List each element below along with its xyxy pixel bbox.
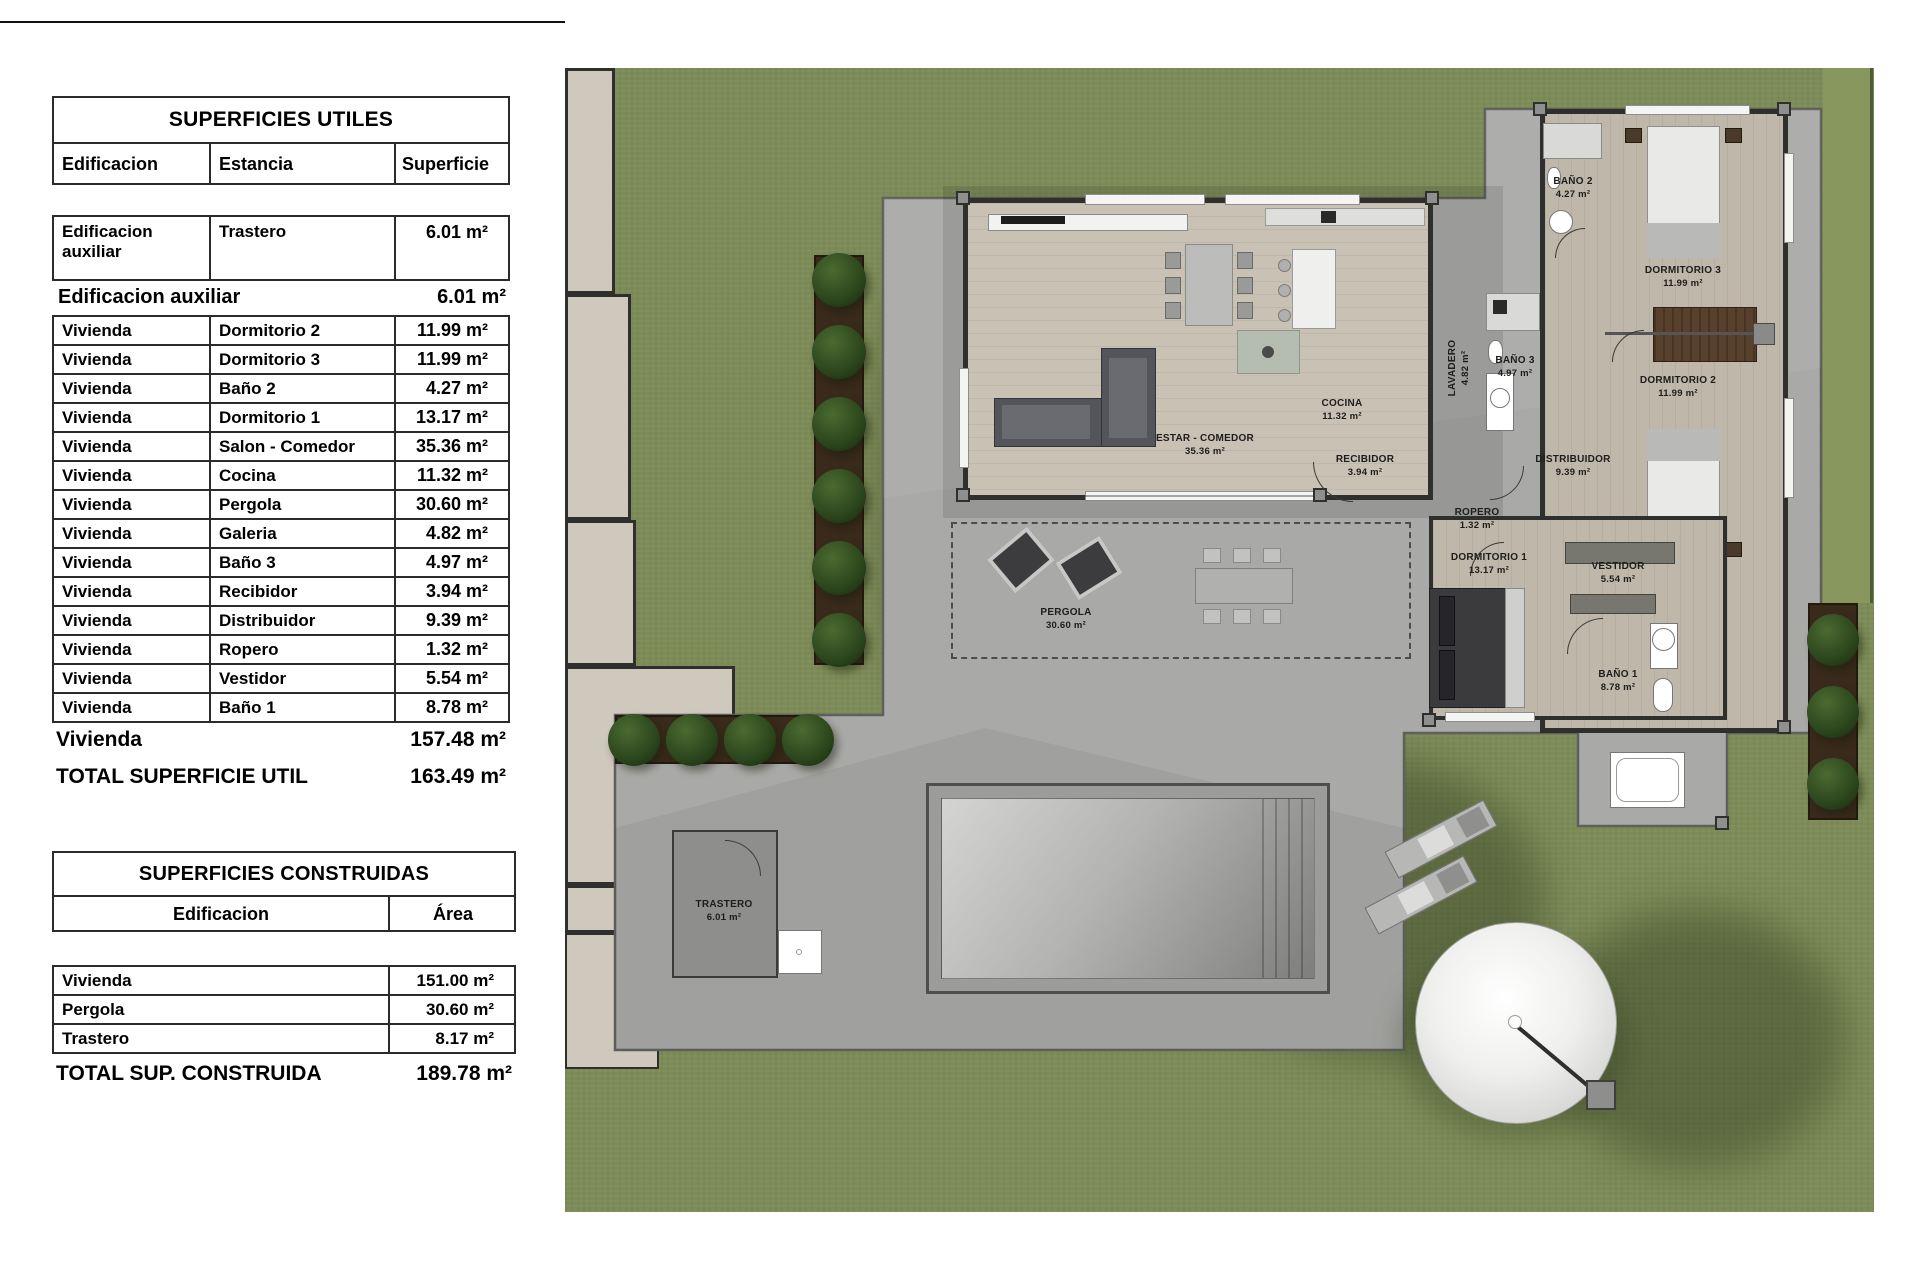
parasol-base: [1586, 1080, 1616, 1110]
total-superficie-util-label: TOTAL SUPERFICIE UTIL: [56, 765, 308, 789]
tree: [812, 469, 866, 523]
dining-table: [1185, 244, 1233, 326]
wall-post: [1422, 713, 1436, 727]
tree: [1807, 686, 1859, 738]
pergola-seat: [1263, 548, 1281, 563]
room-label-vestidor: VESTIDOR5.54 m²: [1591, 560, 1644, 586]
bathtub-inner: [1616, 758, 1679, 802]
total-superficie-util-row: TOTAL SUPERFICIE UTIL 163.49 m²: [56, 760, 506, 794]
aux-estancia-cell: Trastero: [211, 217, 396, 279]
sliding-glass-door: [1085, 491, 1320, 501]
aux-total-row: Edificacion auxiliar 6.01 m²: [58, 281, 506, 313]
nightstand: [1725, 128, 1742, 143]
window: [1085, 194, 1205, 205]
cooktop: [1321, 211, 1336, 223]
wall-post: [1425, 191, 1439, 205]
table-row: ViviendaBaño 18.78 m²: [54, 692, 508, 721]
chair: [1165, 252, 1181, 269]
bed-foot: [1505, 588, 1525, 708]
annex-knob: [796, 949, 802, 955]
col-header-superficie: Superficie: [396, 144, 510, 185]
sink-basin: [1549, 210, 1573, 234]
stool: [1278, 284, 1291, 297]
window: [1784, 398, 1794, 498]
closet-box: [1753, 323, 1775, 345]
room-label-dormitorio1: DORMITORIO 113.17 m²: [1451, 551, 1527, 577]
sink-basin: [1490, 388, 1510, 408]
window: [1784, 153, 1794, 243]
room-label-bano3: BAÑO 34.97 m²: [1495, 354, 1534, 380]
room-label-pergola: PERGOLA30.60 m²: [1040, 606, 1091, 632]
shower-head: [1493, 300, 1507, 314]
table-row: ViviendaDormitorio 113.17 m²: [54, 402, 508, 431]
wall-post: [1777, 102, 1791, 116]
aux-building-row: Edificacion auxiliar Trastero 6.01 m²: [52, 215, 510, 281]
window: [1445, 712, 1535, 722]
pool-steps: [1262, 799, 1314, 978]
chair: [1237, 277, 1253, 294]
table-row: Pergola30.60 m²: [54, 994, 514, 1023]
window: [1625, 105, 1750, 115]
wall-post: [1715, 816, 1729, 830]
vivienda-total-row: Vivienda 157.48 m²: [56, 724, 506, 756]
tree: [666, 714, 718, 766]
wall-post: [956, 191, 970, 205]
kitchen-counter: [1265, 208, 1425, 226]
sink-basin: [1652, 628, 1675, 651]
chair: [1237, 302, 1253, 319]
tree: [812, 325, 866, 379]
tree: [1807, 614, 1859, 666]
col-header-edificacion-2: Edificacion: [54, 897, 390, 932]
room-label-estar-comedor: ESTAR - COMEDOR35.36 m²: [1156, 432, 1254, 458]
chair: [1165, 277, 1181, 294]
superficies-construidas-title: SUPERFICIES CONSTRUIDAS: [54, 853, 514, 897]
col-header-area: Área: [390, 897, 516, 932]
table-row: ViviendaRecibidor3.94 m²: [54, 576, 508, 605]
vivienda-total-value: 157.48 m²: [410, 728, 506, 752]
superficies-construidas-header: SUPERFICIES CONSTRUIDAS Edificacion Área: [52, 851, 516, 932]
table-row: ViviendaGaleria4.82 m²: [54, 518, 508, 547]
tree-planter-left: [814, 255, 864, 665]
pillow: [1439, 650, 1455, 700]
site-plan: ESTAR - COMEDOR35.36 m² COCINA11.32 m² R…: [565, 68, 1874, 1212]
room-label-distribuidor: DISTRIBUIDOR9.39 m²: [1535, 453, 1610, 479]
side-table: [1262, 346, 1274, 358]
total-construida-label: TOTAL SUP. CONSTRUIDA: [56, 1062, 322, 1086]
table-row: ViviendaCocina11.32 m²: [54, 460, 508, 489]
aux-superficie-cell: 6.01 m²: [396, 217, 510, 279]
table-row: Trastero8.17 m²: [54, 1023, 514, 1052]
total-superficie-util-value: 163.49 m²: [410, 765, 506, 789]
vivienda-total-label: Vivienda: [56, 728, 142, 752]
table-row: ViviendaSalon - Comedor35.36 m²: [54, 431, 508, 460]
table-row: ViviendaDormitorio 211.99 m²: [54, 317, 508, 344]
table-row: ViviendaDistribuidor9.39 m²: [54, 605, 508, 634]
sofa-cushion: [1109, 358, 1147, 438]
pergola-seat: [1233, 548, 1251, 563]
room-label-dormitorio3: DORMITORIO 311.99 m²: [1645, 264, 1721, 290]
tree: [812, 541, 866, 595]
nightstand: [1625, 128, 1642, 143]
bed-blanket: [1647, 429, 1720, 461]
superficies-utiles-header: SUPERFICIES UTILES Edificacion Estancia …: [52, 96, 510, 185]
tree: [782, 714, 834, 766]
tree: [812, 613, 866, 667]
aux-total-label: Edificacion auxiliar: [58, 286, 240, 309]
table-row: Vivienda151.00 m²: [54, 967, 514, 994]
room-label-lavadero: LAVADERO4.82 m²: [1446, 340, 1472, 397]
swimming-pool: [926, 783, 1330, 994]
pergola-seat: [1203, 548, 1221, 563]
tree: [724, 714, 776, 766]
table-row: ViviendaPergola30.60 m²: [54, 489, 508, 518]
pillow: [1439, 596, 1455, 646]
table-row: ViviendaBaño 24.27 m²: [54, 373, 508, 402]
parasol-hub: [1508, 1015, 1522, 1029]
vivienda-rows-table: ViviendaDormitorio 211.99 m² ViviendaDor…: [52, 315, 510, 723]
sofa-cushion: [1002, 405, 1090, 439]
table-row: ViviendaBaño 34.97 m²: [54, 547, 508, 576]
table-row: ViviendaDormitorio 311.99 m²: [54, 344, 508, 373]
tree: [608, 714, 660, 766]
table-row: ViviendaRopero1.32 m²: [54, 634, 508, 663]
tree: [1807, 758, 1859, 810]
chair: [1165, 302, 1181, 319]
nightstand: [1725, 542, 1742, 557]
room-label-bano1: BAÑO 18.78 m²: [1598, 668, 1637, 694]
col-header-edificacion: Edificacion: [54, 144, 211, 185]
window: [1225, 194, 1360, 205]
pergola-seat: [1233, 609, 1251, 624]
stool: [1278, 309, 1291, 322]
table-row: ViviendaVestidor5.54 m²: [54, 663, 508, 692]
construidas-rows-table: Vivienda151.00 m² Pergola30.60 m² Traste…: [52, 965, 516, 1054]
pool-water: [941, 798, 1315, 979]
shower: [1543, 123, 1602, 159]
room-label-bano2: BAÑO 24.27 m²: [1553, 175, 1592, 201]
aux-edificacion-cell: Edificacion auxiliar: [54, 217, 211, 279]
aux-total-value: 6.01 m²: [437, 286, 506, 309]
pergola-seat: [1263, 609, 1281, 624]
chair: [1237, 252, 1253, 269]
room-label-dormitorio2: DORMITORIO 211.99 m²: [1640, 374, 1716, 400]
vestidor-closet: [1570, 594, 1656, 614]
tree: [812, 397, 866, 451]
kitchen-island: [1292, 249, 1336, 329]
pergola-seat: [1203, 609, 1221, 624]
bed-blanket: [1647, 223, 1720, 258]
room-label-trastero: TRASTERO6.01 m²: [696, 898, 753, 924]
superficies-utiles-title: SUPERFICIES UTILES: [54, 98, 508, 144]
stool: [1278, 259, 1291, 272]
room-label-cocina: COCINA11.32 m²: [1322, 397, 1363, 423]
wall-post: [956, 488, 970, 502]
col-header-estancia: Estancia: [211, 144, 396, 185]
pergola-table: [1195, 568, 1293, 604]
floorplan-sheet: SUPERFICIES UTILES Edificacion Estancia …: [0, 0, 1920, 1280]
total-construida-value: 189.78 m²: [416, 1062, 512, 1086]
window: [959, 368, 969, 468]
total-construida-row: TOTAL SUP. CONSTRUIDA 189.78 m²: [56, 1056, 512, 1092]
top-border-line: [0, 21, 565, 23]
toilet: [1653, 678, 1673, 712]
room-label-recibidor: RECIBIDOR3.94 m²: [1336, 453, 1394, 479]
tree: [812, 253, 866, 307]
tv-icon: [1001, 216, 1065, 224]
wall-post: [1533, 102, 1547, 116]
wall-post: [1777, 720, 1791, 734]
room-label-ropero: ROPERO1.32 m²: [1455, 506, 1500, 532]
